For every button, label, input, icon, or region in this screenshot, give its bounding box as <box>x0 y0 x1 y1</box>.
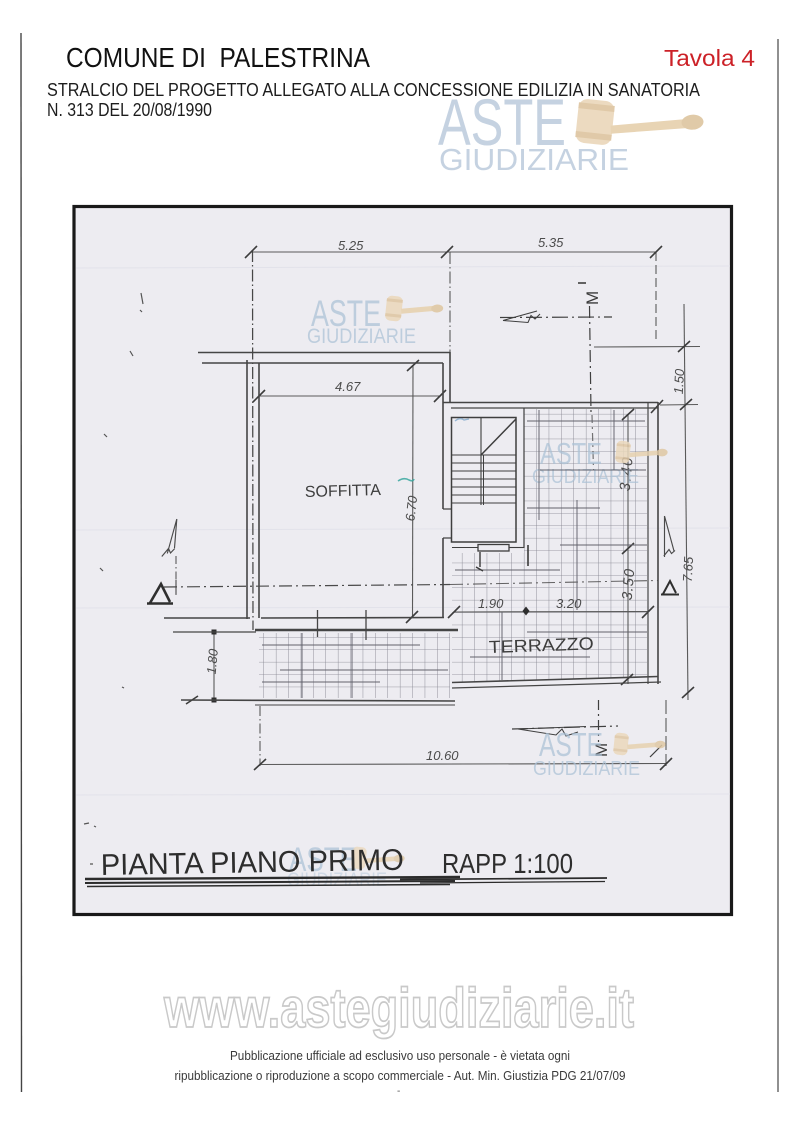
svg-text:1.90: 1.90 <box>478 596 504 611</box>
svg-text:Pubblicazione ufficiale ad esc: Pubblicazione ufficiale ad esclusivo uso… <box>230 1049 570 1063</box>
svg-text:SOFFITTA: SOFFITTA <box>305 482 382 501</box>
svg-text:Tavola 4: Tavola 4 <box>664 45 755 71</box>
svg-text:7.65: 7.65 <box>680 556 696 583</box>
svg-text:5.35: 5.35 <box>538 235 564 250</box>
svg-text:-: - <box>397 1086 400 1097</box>
svg-text:M: M <box>583 291 602 305</box>
svg-text:GIUDIZIARIE: GIUDIZIARIE <box>439 142 629 177</box>
svg-text:ripubblicazione o riproduzione: ripubblicazione o riproduzione a scopo c… <box>175 1069 626 1083</box>
svg-text:GIUDIZIARIE: GIUDIZIARIE <box>307 325 416 348</box>
svg-text:6.70: 6.70 <box>402 494 420 522</box>
svg-text:1.50: 1.50 <box>671 368 687 395</box>
svg-text:10.60: 10.60 <box>426 748 459 763</box>
svg-text:TERRAZZO: TERRAZZO <box>488 633 594 657</box>
svg-text:COMUNE DI PALESTRINA: COMUNE DI PALESTRINA <box>66 42 370 73</box>
svg-text:5.25: 5.25 <box>338 238 364 253</box>
svg-text:1.80: 1.80 <box>204 647 221 674</box>
svg-text:GIUDIZIARIE: GIUDIZIARIE <box>532 466 639 488</box>
svg-text:4.67: 4.67 <box>335 379 361 394</box>
svg-text:RAPP 1:100: RAPP 1:100 <box>442 848 573 879</box>
svg-text:3.50: 3.50 <box>620 567 639 601</box>
svg-text:www.astegiudiziarie.it: www.astegiudiziarie.it <box>163 976 634 1039</box>
svg-text:3.20: 3.20 <box>556 596 582 611</box>
svg-text:STRALCIO DEL PROGETTO ALLEGATO: STRALCIO DEL PROGETTO ALLEGATO ALLA CONC… <box>47 80 700 100</box>
svg-text:GIUDIZIARIE: GIUDIZIARIE <box>533 758 640 780</box>
svg-text:PIANTA PIANO PRIMO: PIANTA PIANO PRIMO <box>101 844 405 882</box>
svg-text:N. 313 DEL 20/08/1990: N. 313 DEL 20/08/1990 <box>47 100 212 120</box>
